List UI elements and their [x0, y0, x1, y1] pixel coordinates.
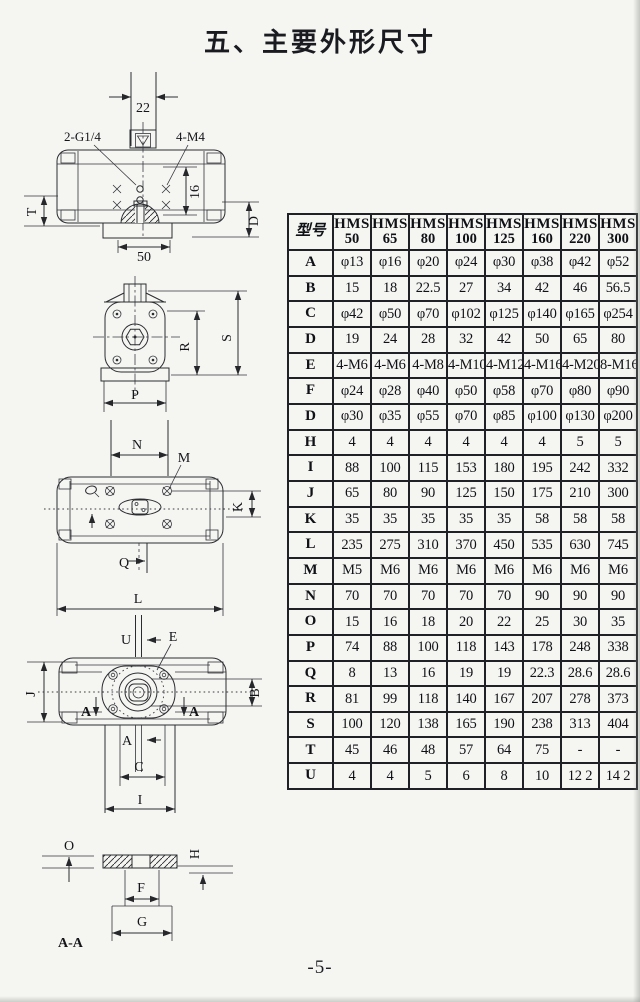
- table-row: MM5M6M6M6M6M6M6M6: [288, 558, 637, 584]
- model-header: HMS100: [447, 214, 485, 250]
- table-row: B151822.52734424656.5: [288, 276, 637, 302]
- value-cell: 143: [485, 635, 523, 661]
- value-cell: 58: [523, 507, 561, 533]
- value-cell: 65: [561, 327, 599, 353]
- value-cell: 118: [447, 635, 485, 661]
- value-cell: -: [561, 737, 599, 763]
- value-cell: 22: [485, 609, 523, 635]
- label-bolts-4-m4: 4-M4: [176, 129, 205, 144]
- row-label-cell: R: [288, 686, 333, 712]
- dim-label-d: D: [247, 216, 262, 226]
- value-cell: 4: [447, 430, 485, 456]
- value-cell: 35: [371, 507, 409, 533]
- value-cell: 178: [523, 635, 561, 661]
- value-cell: 535: [523, 532, 561, 558]
- front-view: 22 2-G1/4 4-M4 16 T D: [24, 72, 262, 265]
- value-cell: M6: [561, 558, 599, 584]
- value-cell: 80: [599, 327, 637, 353]
- value-cell: 35: [409, 507, 447, 533]
- row-label-cell: S: [288, 712, 333, 738]
- value-cell: φ254: [599, 301, 637, 327]
- value-cell: 338: [599, 635, 637, 661]
- table-row: E4-M64-M64-M84-M104-M124-M164-M208-M16: [288, 353, 637, 379]
- value-cell: 5: [409, 763, 447, 789]
- value-cell: 125: [447, 481, 485, 507]
- value-cell: φ102: [447, 301, 485, 327]
- value-cell: 118: [409, 686, 447, 712]
- value-cell: φ90: [599, 378, 637, 404]
- value-cell: 30: [561, 609, 599, 635]
- model-brand: HMS: [448, 217, 484, 232]
- row-label-cell: B: [288, 276, 333, 302]
- value-cell: 70: [409, 584, 447, 610]
- value-cell: M6: [371, 558, 409, 584]
- value-cell: 28.6: [561, 661, 599, 687]
- value-cell: 14 2: [599, 763, 637, 789]
- row-label-cell: C: [288, 301, 333, 327]
- table-row: Dφ30φ35φ55φ70φ85φ100φ130φ200: [288, 404, 637, 430]
- value-cell: φ16: [371, 250, 409, 276]
- table-row: H44444455: [288, 430, 637, 456]
- row-label-cell: F: [288, 378, 333, 404]
- model-size: 300: [600, 232, 636, 247]
- value-cell: 70: [333, 584, 371, 610]
- table-row: Cφ42φ50φ70φ102φ125φ140φ165φ254: [288, 301, 637, 327]
- value-cell: 65: [333, 481, 371, 507]
- value-cell: 100: [371, 455, 409, 481]
- value-cell: 313: [561, 712, 599, 738]
- value-cell: 100: [409, 635, 447, 661]
- dim-label-a: A: [122, 734, 133, 749]
- value-cell: φ30: [485, 250, 523, 276]
- value-cell: φ70: [447, 404, 485, 430]
- model-brand: HMS: [410, 217, 446, 232]
- value-cell: 74: [333, 635, 371, 661]
- value-cell: 58: [599, 507, 637, 533]
- model-brand: HMS: [524, 217, 560, 232]
- model-brand: HMS: [562, 217, 598, 232]
- value-cell: 4-M6: [371, 353, 409, 379]
- value-cell: 46: [561, 276, 599, 302]
- value-cell: 120: [371, 712, 409, 738]
- section-caption: A-A: [58, 936, 84, 951]
- row-label-cell: D: [288, 327, 333, 353]
- value-cell: 90: [599, 584, 637, 610]
- dimension-table-body: Aφ13φ16φ20φ24φ30φ38φ42φ52B151822.5273442…: [288, 250, 637, 789]
- dim-label-m: M: [178, 451, 191, 466]
- page-title: 五、主要外形尺寸: [0, 22, 640, 59]
- value-cell: -: [599, 737, 637, 763]
- value-cell: 56.5: [599, 276, 637, 302]
- header-row: 型号HMS50HMS65HMS80HMS100HMS125HMS160HMS22…: [288, 214, 637, 250]
- value-cell: φ42: [561, 250, 599, 276]
- value-cell: 6: [447, 763, 485, 789]
- value-cell: 13: [371, 661, 409, 687]
- table-row: L235275310370450535630745: [288, 532, 637, 558]
- table-row: Fφ24φ28φ40φ50φ58φ70φ80φ90: [288, 378, 637, 404]
- dim-label-c: C: [134, 760, 143, 775]
- value-cell: 4: [371, 430, 409, 456]
- model-size: 125: [486, 232, 522, 247]
- value-cell: φ30: [333, 404, 371, 430]
- value-cell: 4-M8: [409, 353, 447, 379]
- value-cell: φ40: [409, 378, 447, 404]
- value-cell: 35: [333, 507, 371, 533]
- dim-label-e: E: [169, 630, 178, 645]
- value-cell: 4-M16: [523, 353, 561, 379]
- value-cell: 75: [523, 737, 561, 763]
- row-label-cell: H: [288, 430, 333, 456]
- value-cell: 35: [447, 507, 485, 533]
- row-label-cell: T: [288, 737, 333, 763]
- table-row: R8199118140167207278373: [288, 686, 637, 712]
- value-cell: 115: [409, 455, 447, 481]
- row-label-cell: M: [288, 558, 333, 584]
- dim-label-f: F: [137, 881, 145, 896]
- value-cell: 99: [371, 686, 409, 712]
- model-brand: HMS: [372, 217, 408, 232]
- table-row: U445681012 214 2: [288, 763, 637, 789]
- row-label-cell: N: [288, 584, 333, 610]
- technical-drawings: 22 2-G1/4 4-M4 16 T D: [0, 60, 287, 960]
- value-cell: 15: [333, 609, 371, 635]
- dim-label-u: U: [121, 633, 131, 648]
- model-size: 80: [410, 232, 446, 247]
- value-cell: 4: [371, 763, 409, 789]
- value-cell: φ42: [333, 301, 371, 327]
- value-cell: 180: [485, 455, 523, 481]
- model-brand: HMS: [486, 217, 522, 232]
- value-cell: M6: [485, 558, 523, 584]
- table-row: O1516182022253035: [288, 609, 637, 635]
- value-cell: 310: [409, 532, 447, 558]
- value-cell: 15: [333, 276, 371, 302]
- dim-label-n: N: [132, 438, 142, 453]
- dim-label-q: Q: [119, 556, 129, 571]
- row-label-cell: D: [288, 404, 333, 430]
- value-cell: 58: [561, 507, 599, 533]
- model-size: 65: [372, 232, 408, 247]
- value-cell: 332: [599, 455, 637, 481]
- value-cell: 35: [485, 507, 523, 533]
- value-cell: 22.3: [523, 661, 561, 687]
- table-row: D1924283242506580: [288, 327, 637, 353]
- value-cell: 4: [333, 430, 371, 456]
- model-column-header: 型号: [288, 214, 333, 250]
- value-cell: 745: [599, 532, 637, 558]
- value-cell: 19: [447, 661, 485, 687]
- dim-label-t: T: [25, 207, 40, 216]
- table-row: J658090125150175210300: [288, 481, 637, 507]
- value-cell: 70: [485, 584, 523, 610]
- model-brand: HMS: [600, 217, 636, 232]
- dim-label-i: I: [138, 793, 143, 808]
- dim-label-16: 16: [188, 185, 203, 199]
- value-cell: φ70: [523, 378, 561, 404]
- end-view: R S P: [93, 276, 247, 412]
- value-cell: 88: [371, 635, 409, 661]
- value-cell: 50: [523, 327, 561, 353]
- value-cell: 18: [409, 609, 447, 635]
- value-cell: 195: [523, 455, 561, 481]
- row-label-cell: U: [288, 763, 333, 789]
- row-label-cell: A: [288, 250, 333, 276]
- value-cell: M5: [333, 558, 371, 584]
- dim-label-g: G: [137, 915, 147, 930]
- row-label-cell: L: [288, 532, 333, 558]
- value-cell: 370: [447, 532, 485, 558]
- value-cell: M6: [409, 558, 447, 584]
- value-cell: 5: [599, 430, 637, 456]
- value-cell: 8: [485, 763, 523, 789]
- scanned-document-page: 五、主要外形尺寸 22: [0, 0, 640, 1002]
- value-cell: 235: [333, 532, 371, 558]
- table-row: T454648576475--: [288, 737, 637, 763]
- value-cell: 81: [333, 686, 371, 712]
- value-cell: φ200: [599, 404, 637, 430]
- value-cell: φ55: [409, 404, 447, 430]
- row-label-cell: P: [288, 635, 333, 661]
- value-cell: 210: [561, 481, 599, 507]
- model-size: 160: [524, 232, 560, 247]
- value-cell: 207: [523, 686, 561, 712]
- model-size: 100: [448, 232, 484, 247]
- value-cell: M6: [447, 558, 485, 584]
- value-cell: φ13: [333, 250, 371, 276]
- value-cell: 90: [409, 481, 447, 507]
- value-cell: 4-M12: [485, 353, 523, 379]
- table-row: Aφ13φ16φ20φ24φ30φ38φ42φ52: [288, 250, 637, 276]
- value-cell: 88: [333, 455, 371, 481]
- value-cell: 4: [485, 430, 523, 456]
- table-row: N7070707070909090: [288, 584, 637, 610]
- value-cell: 80: [371, 481, 409, 507]
- value-cell: 16: [371, 609, 409, 635]
- value-cell: 90: [523, 584, 561, 610]
- value-cell: 46: [371, 737, 409, 763]
- value-cell: 373: [599, 686, 637, 712]
- dimension-table-head: 型号HMS50HMS65HMS80HMS100HMS125HMS160HMS22…: [288, 214, 637, 250]
- value-cell: φ140: [523, 301, 561, 327]
- value-cell: 70: [371, 584, 409, 610]
- dim-label-h: H: [188, 849, 203, 859]
- model-header: HMS50: [333, 214, 371, 250]
- value-cell: 28.6: [599, 661, 637, 687]
- value-cell: φ50: [371, 301, 409, 327]
- value-cell: 10: [523, 763, 561, 789]
- bottom-view: U E J: [24, 615, 263, 813]
- model-brand: HMS: [334, 217, 370, 232]
- value-cell: 18: [371, 276, 409, 302]
- value-cell: 27: [447, 276, 485, 302]
- value-cell: φ52: [599, 250, 637, 276]
- value-cell: M6: [599, 558, 637, 584]
- dim-label-j: J: [24, 691, 39, 697]
- dimension-table: 型号HMS50HMS65HMS80HMS100HMS125HMS160HMS22…: [287, 213, 638, 790]
- scan-edge-shadow-right: [633, 0, 640, 1002]
- value-cell: 8: [333, 661, 371, 687]
- dim-label-b: B: [248, 688, 263, 697]
- value-cell: 450: [485, 532, 523, 558]
- value-cell: φ70: [409, 301, 447, 327]
- model-header: HMS220: [561, 214, 599, 250]
- value-cell: 28: [409, 327, 447, 353]
- table-row: P7488100118143178248338: [288, 635, 637, 661]
- value-cell: 48: [409, 737, 447, 763]
- value-cell: φ165: [561, 301, 599, 327]
- value-cell: 24: [371, 327, 409, 353]
- value-cell: 45: [333, 737, 371, 763]
- table-row: Q81316191922.328.628.6: [288, 661, 637, 687]
- dim-label-r: R: [178, 342, 193, 352]
- value-cell: 4-M6: [333, 353, 371, 379]
- value-cell: φ58: [485, 378, 523, 404]
- value-cell: 4-M10: [447, 353, 485, 379]
- value-cell: 90: [561, 584, 599, 610]
- model-header: HMS160: [523, 214, 561, 250]
- value-cell: 42: [523, 276, 561, 302]
- value-cell: 190: [485, 712, 523, 738]
- value-cell: φ38: [523, 250, 561, 276]
- value-cell: φ100: [523, 404, 561, 430]
- section-view: O H F G A-A: [42, 839, 233, 951]
- dim-label-22: 22: [136, 101, 150, 116]
- value-cell: 275: [371, 532, 409, 558]
- dim-label-p: P: [131, 388, 139, 403]
- value-cell: 22.5: [409, 276, 447, 302]
- row-label-cell: O: [288, 609, 333, 635]
- value-cell: 100: [333, 712, 371, 738]
- value-cell: 238: [523, 712, 561, 738]
- value-cell: 12 2: [561, 763, 599, 789]
- value-cell: 140: [447, 686, 485, 712]
- value-cell: 42: [485, 327, 523, 353]
- label-port-2-g14: 2-G1/4: [64, 129, 101, 144]
- dim-label-s: S: [220, 334, 235, 342]
- model-header: HMS80: [409, 214, 447, 250]
- section-marker-a-left: A: [81, 705, 92, 720]
- row-label-cell: Q: [288, 661, 333, 687]
- value-cell: 64: [485, 737, 523, 763]
- value-cell: M6: [523, 558, 561, 584]
- value-cell: 19: [333, 327, 371, 353]
- model-header: HMS300: [599, 214, 637, 250]
- value-cell: 138: [409, 712, 447, 738]
- dim-label-o: O: [64, 839, 74, 854]
- value-cell: 5: [561, 430, 599, 456]
- value-cell: 34: [485, 276, 523, 302]
- value-cell: 35: [599, 609, 637, 635]
- value-cell: 242: [561, 455, 599, 481]
- row-label-cell: J: [288, 481, 333, 507]
- value-cell: 19: [485, 661, 523, 687]
- value-cell: φ130: [561, 404, 599, 430]
- table-row: K3535353535585858: [288, 507, 637, 533]
- value-cell: 70: [447, 584, 485, 610]
- value-cell: φ35: [371, 404, 409, 430]
- value-cell: 32: [447, 327, 485, 353]
- dim-label-l: L: [134, 592, 143, 607]
- value-cell: 630: [561, 532, 599, 558]
- value-cell: φ28: [371, 378, 409, 404]
- row-label-cell: E: [288, 353, 333, 379]
- value-cell: φ24: [447, 250, 485, 276]
- row-label-cell: I: [288, 455, 333, 481]
- value-cell: φ24: [333, 378, 371, 404]
- value-cell: 20: [447, 609, 485, 635]
- value-cell: 4-M20: [561, 353, 599, 379]
- value-cell: 300: [599, 481, 637, 507]
- value-cell: φ125: [485, 301, 523, 327]
- value-cell: 248: [561, 635, 599, 661]
- value-cell: 150: [485, 481, 523, 507]
- section-marker-a-right: A: [189, 705, 200, 720]
- value-cell: φ50: [447, 378, 485, 404]
- value-cell: φ20: [409, 250, 447, 276]
- row-label-cell: K: [288, 507, 333, 533]
- table-row: I88100115153180195242332: [288, 455, 637, 481]
- model-size: 50: [334, 232, 370, 247]
- value-cell: 165: [447, 712, 485, 738]
- dim-label-k: K: [231, 502, 246, 512]
- value-cell: 175: [523, 481, 561, 507]
- value-cell: 16: [409, 661, 447, 687]
- model-size: 220: [562, 232, 598, 247]
- value-cell: φ85: [485, 404, 523, 430]
- scan-edge-shadow-bottom: [0, 996, 640, 1002]
- model-header: HMS125: [485, 214, 523, 250]
- value-cell: φ80: [561, 378, 599, 404]
- value-cell: 4: [523, 430, 561, 456]
- value-cell: 25: [523, 609, 561, 635]
- page-number: -5-: [0, 957, 640, 979]
- value-cell: 4: [333, 763, 371, 789]
- value-cell: 278: [561, 686, 599, 712]
- table-row: S100120138165190238313404: [288, 712, 637, 738]
- top-view: N M K: [44, 420, 261, 616]
- value-cell: 404: [599, 712, 637, 738]
- value-cell: 8-M16: [599, 353, 637, 379]
- value-cell: 57: [447, 737, 485, 763]
- value-cell: 153: [447, 455, 485, 481]
- dim-label-50: 50: [137, 250, 151, 265]
- value-cell: 4: [409, 430, 447, 456]
- model-header: HMS65: [371, 214, 409, 250]
- value-cell: 167: [485, 686, 523, 712]
